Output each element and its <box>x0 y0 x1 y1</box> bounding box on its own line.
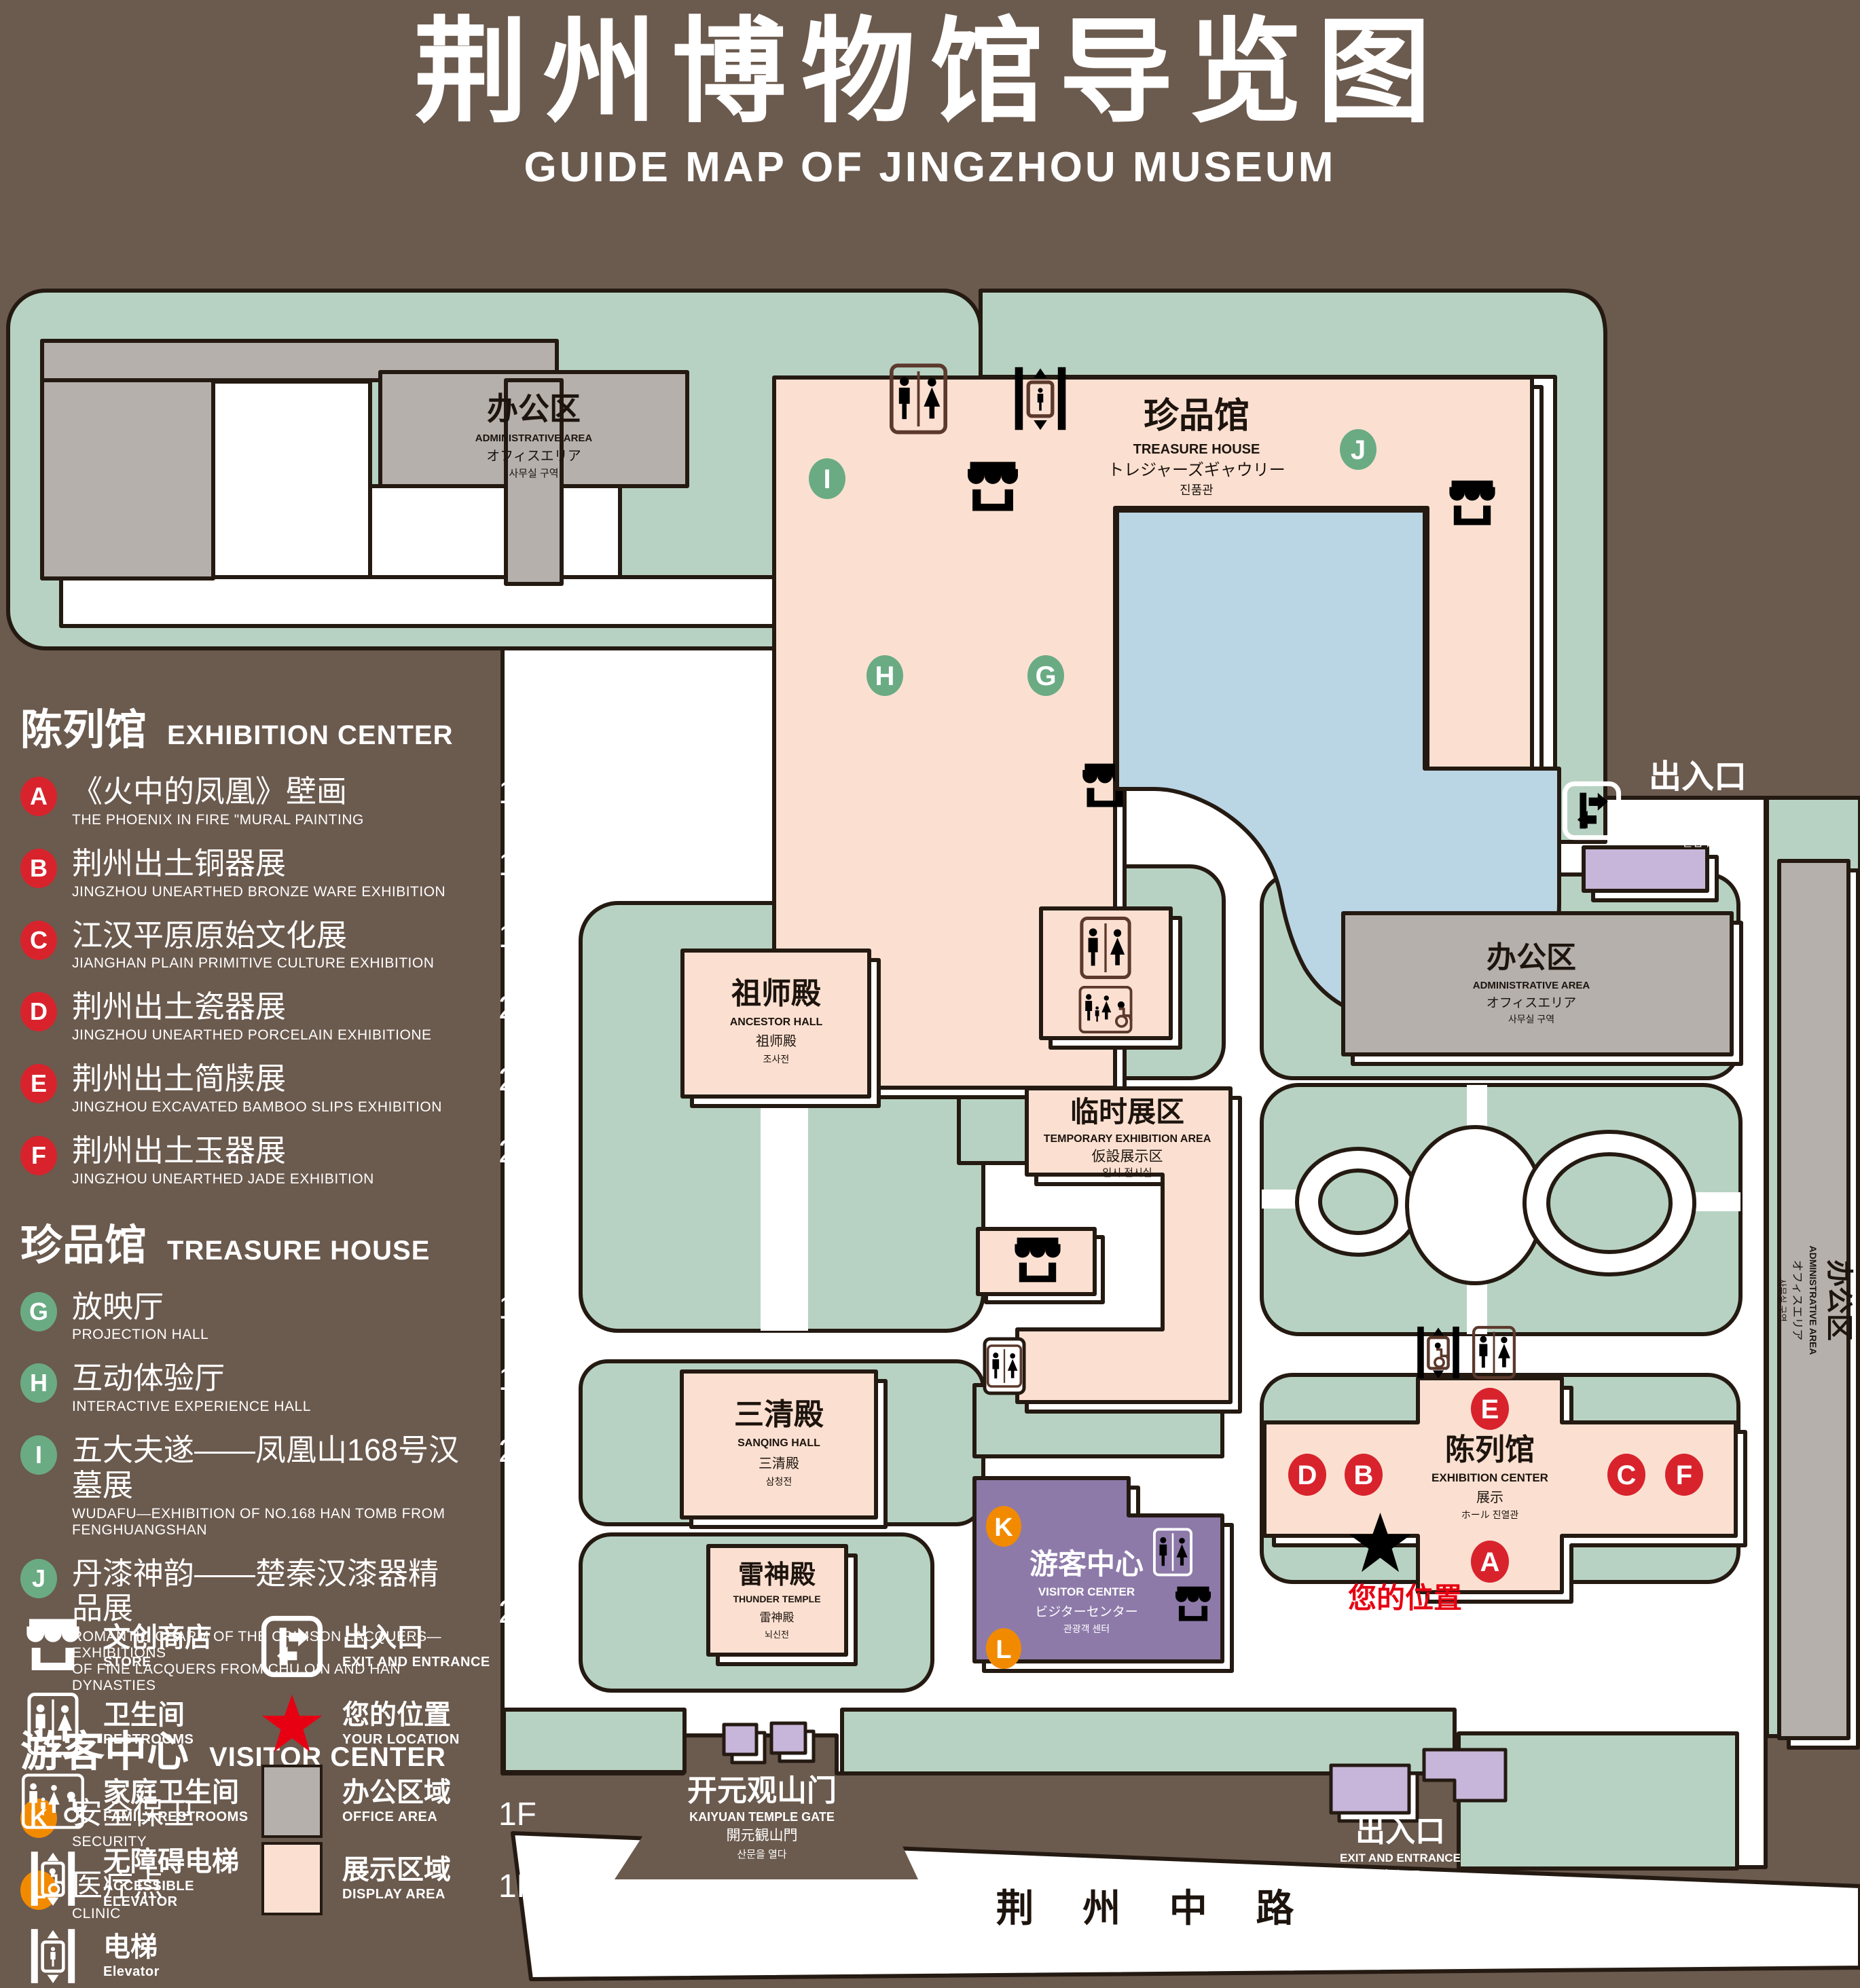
exhibition-en: EXHIBITION CENTER <box>1432 1471 1548 1484</box>
sym-en: DISPLAY AREA <box>342 1887 451 1902</box>
marker-F: F <box>1665 1454 1703 1496</box>
exhibition-kr: ホール 진열관 <box>1461 1509 1519 1520</box>
symbol-legend: 文创商店STORE 出入口EXIT AND ENTRANCE 卫生间RESTRO… <box>20 1608 543 1988</box>
marker-I: I <box>809 458 845 499</box>
item-zh: 荆州出土简牍展 <box>72 1061 286 1096</box>
svg-text:B: B <box>1354 1460 1374 1490</box>
sanqing-en: SANQING HALL <box>737 1437 820 1449</box>
legend-section-exhibition: 陈列馆 EXHIBITION CENTER <box>20 695 536 756</box>
admin-r-zh: 办公区 <box>1487 941 1576 974</box>
gate-jp: 開元観山門 <box>727 1828 798 1843</box>
legend-item-F: F荆州出土玉器展JINGZHOU UNEARTHED JADE EXHIBITI… <box>20 1133 536 1188</box>
treasure-kr: 진품관 <box>1180 483 1214 497</box>
admin-tl-kr: 사무실 구역 <box>509 468 558 479</box>
legend-store: 文创商店STORE <box>20 1614 259 1679</box>
display-area-swatch <box>259 1846 325 1911</box>
sanqing-jp: 三清殿 <box>759 1456 799 1471</box>
item-zh: 江汉平原原始文化展 <box>72 918 347 953</box>
item-floor: 2F <box>475 1433 536 1470</box>
item-floor: 1F <box>475 774 536 811</box>
svg-text:G: G <box>1035 661 1056 691</box>
ancestor-en: ANCESTOR HALL <box>730 1016 823 1028</box>
marker-D: D <box>1288 1454 1326 1496</box>
sym-zh: 您的位置 <box>342 1701 460 1729</box>
legend-your-location: 您的位置YOUR LOCATION <box>259 1691 543 1756</box>
badge-H: H <box>20 1363 57 1403</box>
legend-item-H: H互动体验厅INTERACTIVE EXPERIENCE HALL1F <box>20 1361 536 1415</box>
svg-text:H: H <box>875 661 895 691</box>
item-en: INTERACTIVE EXPERIENCE HALL <box>72 1399 469 1415</box>
item-zh: 荆州出土玉器展 <box>72 1133 286 1168</box>
badge-J: J <box>20 1559 57 1598</box>
item-zh: 荆州出土铜器展 <box>72 846 286 881</box>
admin-tl-en: ADMINISTRATIVE AREA <box>475 432 593 444</box>
exit-br-en: EXIT AND ENTRANCE <box>1340 1852 1461 1864</box>
section-en: TREASURE HOUSE <box>167 1236 430 1266</box>
exit-icon <box>259 1614 325 1679</box>
legend-elevator: 电梯Elevator <box>20 1923 259 1988</box>
gate-zh: 开元观山门 <box>687 1774 837 1807</box>
thunder-temple: 雷神殿 THUNDER TEMPLE 雷神殿 뇌신전 <box>708 1546 856 1664</box>
entrance-pad <box>1584 847 1707 891</box>
exhibition-jp: 展示 <box>1476 1490 1503 1505</box>
admin-s-kr: 사무실 구역 <box>1777 1278 1787 1321</box>
item-floor: 1F <box>475 918 536 955</box>
admin-s-en: ADMINISTRATIVE AREA <box>1808 1246 1819 1355</box>
badge-G: G <box>20 1292 57 1331</box>
section-zh: 陈列馆 <box>20 695 147 756</box>
item-zh: 《火中的凤凰》壁画 <box>72 774 347 809</box>
item-en: PROJECTION HALL <box>72 1327 469 1343</box>
entrance-pad <box>1331 1765 1409 1813</box>
ancestor-zh: 祖师殿 <box>731 977 821 1010</box>
sym-en: Elevator <box>103 1964 160 1980</box>
item-floor: 2F <box>475 989 536 1027</box>
item-floor: 2F <box>475 1133 536 1171</box>
accessible-elevator-icon <box>20 1846 86 1911</box>
admin-r-kr: 사무실 구역 <box>1508 1014 1554 1025</box>
sym-en: ACCESSIBLE ELEVATOR <box>103 1879 259 1910</box>
marker-G: G <box>1027 655 1064 696</box>
sym-zh: 出入口 <box>342 1623 490 1652</box>
item-en: JINGZHOU UNEARTHED JADE EXHIBITION <box>72 1171 469 1188</box>
marker-E: E <box>1471 1388 1509 1430</box>
item-zh: 互动体验厅 <box>72 1361 225 1395</box>
treasure-zh: 珍品馆 <box>1144 397 1250 436</box>
restroom-icon <box>20 1691 86 1756</box>
thunder-jp: 雷神殿 <box>760 1611 795 1624</box>
treasure-en: TREASURE HOUSE <box>1133 442 1260 457</box>
thunder-en: THUNDER TEMPLE <box>733 1594 820 1604</box>
svg-text:A: A <box>1480 1547 1500 1577</box>
sym-zh: 家庭卫生间 <box>103 1778 249 1807</box>
sanqing-zh: 三清殿 <box>734 1398 824 1431</box>
exit-tr-en: EXIT AND ENTRANCE <box>1637 799 1758 812</box>
item-zh: 放映厅 <box>72 1289 164 1324</box>
sym-en: YOUR LOCATION <box>342 1732 460 1748</box>
store-icon <box>20 1614 86 1679</box>
elevator-icon <box>1015 367 1066 430</box>
gate-pillar <box>724 1725 756 1754</box>
item-en: JIANGHAN PLAIN PRIMITIVE CULTURE EXHIBIT… <box>72 955 469 972</box>
section-zh: 珍品馆 <box>20 1211 147 1272</box>
sym-en: EXIT AND ENTRANCE <box>342 1655 490 1670</box>
item-zh: 荆州出土瓷器展 <box>72 989 286 1024</box>
sym-en: OFFICE AREA <box>342 1809 451 1825</box>
visitor-jp: ビジターセンター <box>1035 1604 1138 1619</box>
badge-E: E <box>20 1064 57 1103</box>
item-en: THE PHOENIX IN FIRE "MURAL PAINTING <box>72 812 469 828</box>
legend-accessible-elevator: 无障碍电梯ACCESSIBLE ELEVATOR <box>20 1846 259 1911</box>
elevator-icon <box>20 1923 86 1988</box>
sym-en: STORE <box>103 1655 212 1670</box>
marker-B: B <box>1345 1454 1383 1496</box>
sym-zh: 电梯 <box>103 1933 160 1962</box>
location-star-icon <box>259 1691 325 1756</box>
item-en: JINGZHOU UNEARTHED BRONZE WARE EXHIBITIO… <box>72 884 469 900</box>
legend-item-D: D荆州出土瓷器展JINGZHOU UNEARTHED PORCELAIN EXH… <box>20 989 536 1044</box>
section-en: EXHIBITION CENTER <box>167 720 453 751</box>
central-restroom-block <box>1041 908 1180 1048</box>
legend-item-B: B荆州出土铜器展JINGZHOU UNEARTHED BRONZE WARE E… <box>20 846 536 900</box>
entrance-pad <box>1424 1750 1506 1801</box>
admin-tl-jp: オフィスエリア <box>486 449 581 464</box>
svg-text:D: D <box>1298 1460 1317 1490</box>
sym-zh: 卫生间 <box>103 1701 194 1729</box>
sanqing-kr: 삼청전 <box>766 1476 792 1487</box>
badge-F: F <box>20 1136 57 1175</box>
treasure-jp: トレジャーズギャウリー <box>1108 461 1285 479</box>
marker-H: H <box>867 655 903 696</box>
item-floor: 1F <box>475 1361 536 1398</box>
svg-text:K: K <box>994 1513 1013 1542</box>
admin-r-en: ADMINISTRATIVE AREA <box>1473 980 1590 991</box>
marker-A: A <box>1471 1541 1509 1583</box>
svg-text:F: F <box>1676 1460 1692 1490</box>
legend-exit: 出入口EXIT AND ENTRANCE <box>259 1614 543 1679</box>
legend-family-restrooms: 家庭卫生间FAMILY RESTROOMS <box>20 1769 259 1834</box>
thunder-kr: 뇌신전 <box>765 1630 789 1640</box>
svg-text:C: C <box>1617 1460 1637 1490</box>
svg-text:I: I <box>823 464 831 494</box>
gate-pillar <box>771 1723 805 1753</box>
legend-office-area: 办公区域OFFICE AREA <box>259 1769 543 1834</box>
legend-section-treasure: 珍品馆 TREASURE HOUSE <box>20 1211 536 1272</box>
gate-kr: 산문을 열다 <box>737 1849 786 1860</box>
item-en: JINGZHOU UNEARTHED PORCELAIN EXHIBITIONE <box>72 1027 469 1044</box>
ancestor-jp: 祖师殿 <box>756 1033 797 1049</box>
your-location-label: 您的位置 <box>1348 1582 1462 1614</box>
legend-display-area: 展示区域DISPLAY AREA <box>259 1846 543 1911</box>
sym-en: FAMILY RESTROOMS <box>103 1809 249 1825</box>
sym-zh: 办公区域 <box>342 1778 451 1807</box>
admin-s-jp: オフィスエリア <box>1791 1260 1804 1341</box>
legend-item-I: I五大夫遂——凤凰山168号汉墓展WUDAFU—EXHIBITION OF NO… <box>20 1433 536 1539</box>
legend-item-G: G放映厅PROJECTION HALL1F <box>20 1289 536 1344</box>
legend-item-E: E荆州出土简牍展JINGZHOU EXCAVATED BAMBOO SLIPS … <box>20 1061 536 1116</box>
svg-text:J: J <box>1351 435 1366 465</box>
admin-strip-right: 办公区 ADMINISTRATIVE AREA オフィスエリア 사무실 구역 <box>1777 861 1858 1748</box>
office-area-swatch <box>259 1769 325 1834</box>
visitor-en: VISITOR CENTER <box>1038 1585 1135 1598</box>
temporary-jp: 仮設展示区 <box>1092 1149 1163 1164</box>
temporary-zh: 临时展区 <box>1070 1096 1184 1128</box>
marker-L: L <box>986 1628 1021 1669</box>
visitor-kr: 관광객 센터 <box>1063 1623 1110 1634</box>
badge-D: D <box>20 992 57 1031</box>
temporary-kr: 임시 전시실 <box>1102 1167 1152 1179</box>
marker-K: K <box>986 1506 1021 1547</box>
sym-zh: 文创商店 <box>103 1623 212 1652</box>
legend-restrooms: 卫生间RESTROOMS <box>20 1691 259 1756</box>
item-en: JINGZHOU EXCAVATED BAMBOO SLIPS EXHIBITI… <box>72 1099 469 1116</box>
exit-tr-zh: 出入口 <box>1649 759 1747 795</box>
road-label: 荆 州 中 路 <box>996 1887 1313 1930</box>
admin-building-right: 办公区 ADMINISTRATIVE AREA オフィスエリア 사무실 구역 <box>1343 913 1741 1064</box>
guide-map-poster: 荆州博物馆导览图 GUIDE MAP OF JINGZHOU MUSEUM <box>0 0 1860 1988</box>
badge-I: I <box>20 1435 57 1475</box>
item-zh: 五大夫遂——凤凰山168号汉墓展 <box>72 1433 459 1503</box>
sym-zh: 无障碍电梯 <box>103 1847 259 1876</box>
exit-tr-jp: 出入口 <box>1675 815 1720 832</box>
family-restroom-icon <box>20 1769 86 1834</box>
exit-br-jp: 出入口 <box>1380 1869 1421 1884</box>
thunder-zh: 雷神殿 <box>738 1561 816 1589</box>
admin-s-zh: 办公区 <box>1824 1259 1854 1341</box>
badge-A: A <box>20 777 57 816</box>
item-en: WUDAFU—EXHIBITION OF NO.168 HAN TOMB FRO… <box>72 1506 469 1539</box>
item-floor: 1F <box>475 846 536 883</box>
ancestor-kr: 조사전 <box>763 1054 790 1065</box>
legend-item-A: A《火中的凤凰》壁画THE PHOENIX IN FIRE "MURAL PAI… <box>20 774 536 828</box>
badge-C: C <box>20 921 57 960</box>
exit-br-zh: 出入口 <box>1355 1815 1445 1848</box>
exit-tr-kr: 출입구 <box>1683 836 1713 849</box>
svg-text:E: E <box>1481 1395 1499 1424</box>
gate-en: KAIYUAN TEMPLE GATE <box>689 1810 835 1824</box>
sym-zh: 展示区域 <box>342 1856 451 1884</box>
admin-tl-zh: 办公区 <box>487 391 581 426</box>
svg-text:L: L <box>996 1636 1011 1664</box>
temporary-en: TEMPORARY EXHIBITION AREA <box>1044 1133 1211 1145</box>
sanqing-hall: 三清殿 SANQING HALL 三清殿 삼청전 <box>682 1372 886 1527</box>
item-floor: 1F <box>475 1289 536 1327</box>
visitor-zh: 游客中心 <box>1029 1548 1144 1580</box>
admin-r-jp: オフィスエリア <box>1487 996 1577 1010</box>
exit-br-kr: 출입구 <box>1386 1888 1414 1900</box>
item-floor: 2F <box>475 1061 536 1099</box>
sym-en: RESTROOMS <box>103 1732 194 1748</box>
exhibition-zh: 陈列馆 <box>1445 1433 1535 1467</box>
legend-item-C: C江汉平原原始文化展JIANGHAN PLAIN PRIMITIVE CULTU… <box>20 918 536 972</box>
marker-J: J <box>1340 429 1376 470</box>
marker-C: C <box>1607 1454 1645 1496</box>
badge-B: B <box>20 849 57 888</box>
